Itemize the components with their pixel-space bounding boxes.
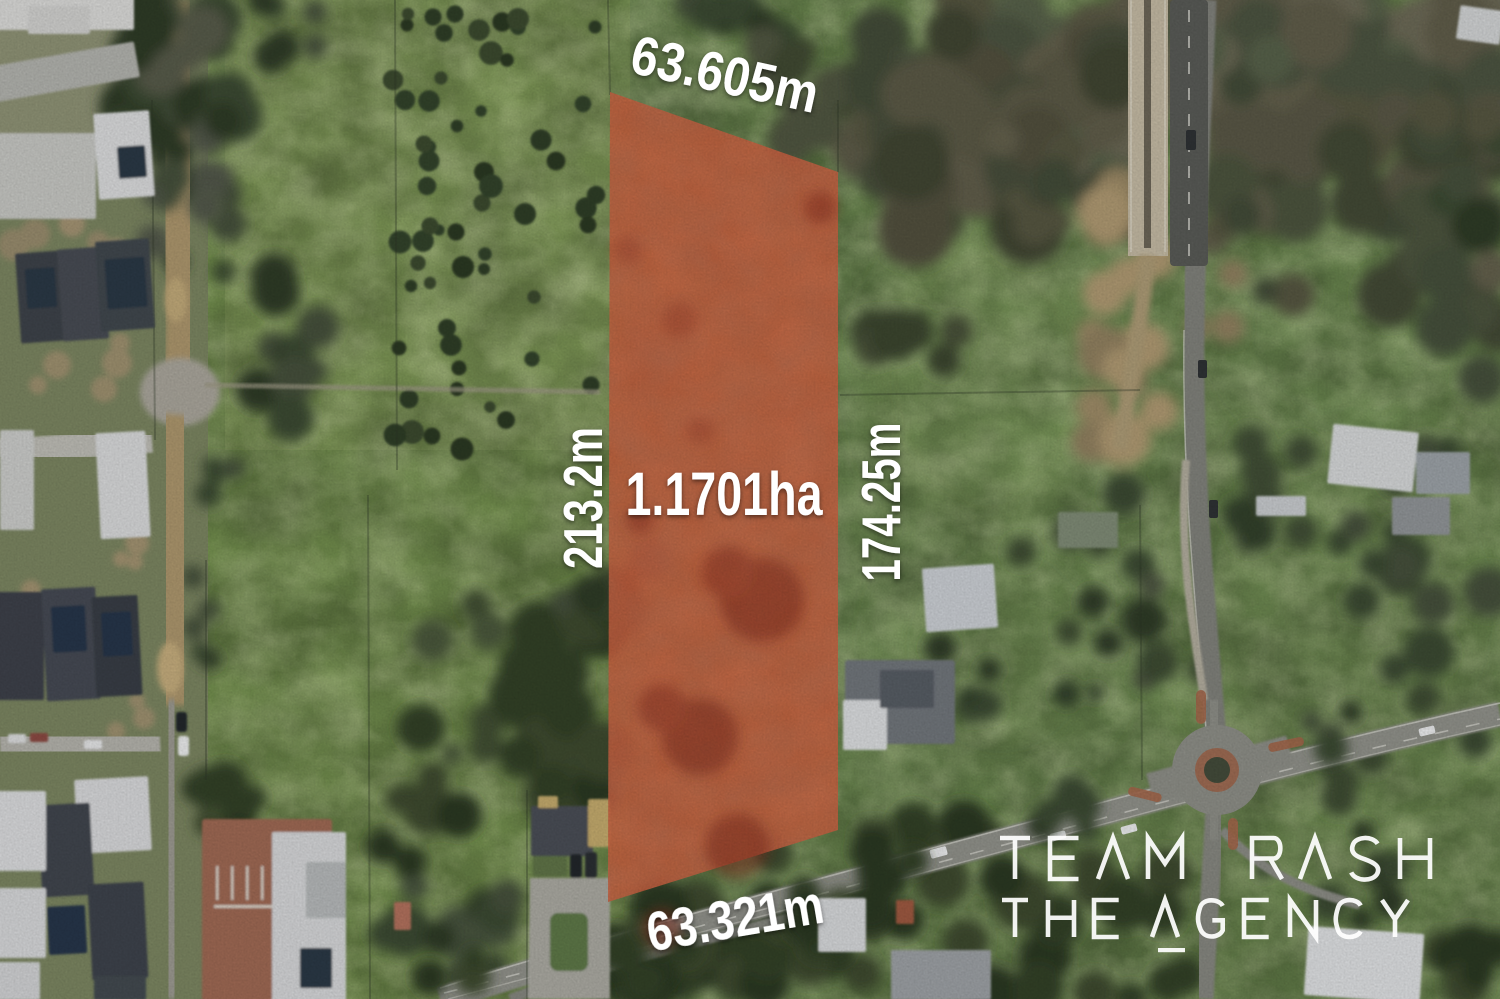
svg-text:174.25m: 174.25m (850, 423, 912, 582)
svg-text:1.1701ha: 1.1701ha (626, 460, 824, 528)
svg-text:213.2m: 213.2m (552, 427, 614, 569)
